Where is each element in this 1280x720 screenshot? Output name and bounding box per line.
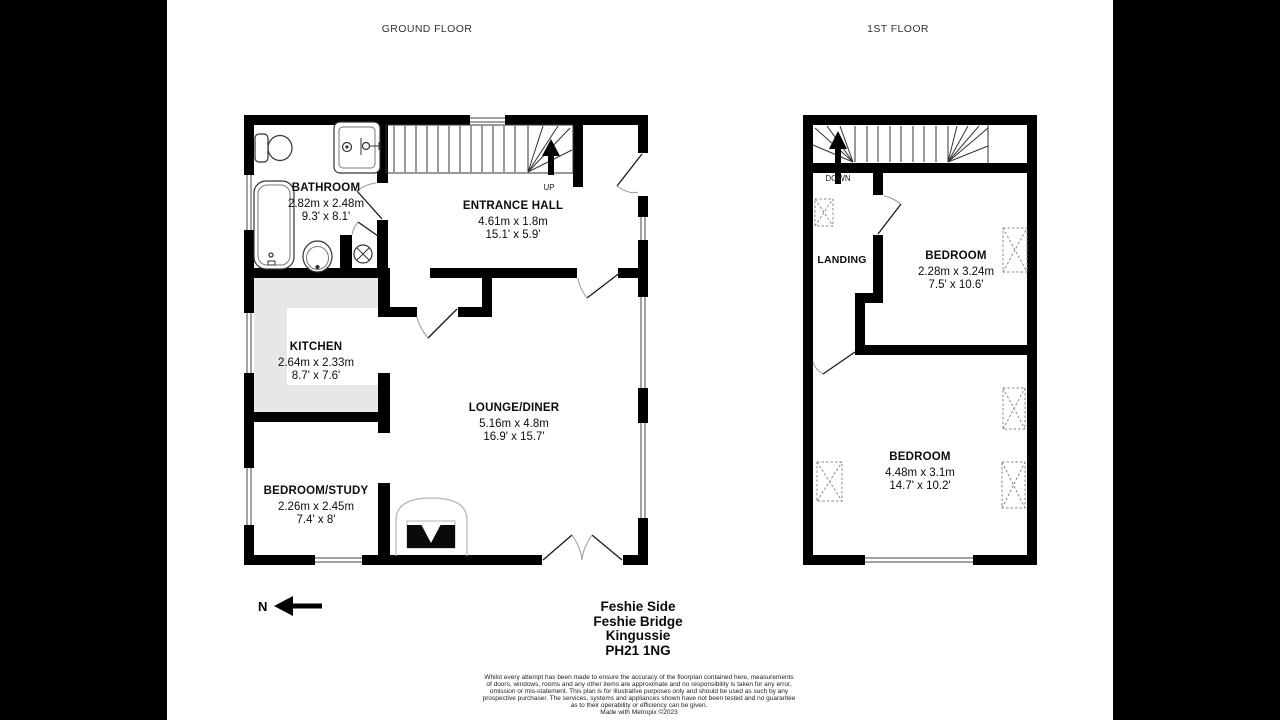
first-windows (865, 555, 973, 565)
ground-staircase (386, 125, 573, 173)
fireplace-icon (396, 498, 467, 556)
ground-floor-title: GROUND FLOOR (382, 23, 473, 35)
address-line: PH21 1NG (593, 644, 682, 659)
room-label-bedroom-1: BEDROOM 2.28m x 3.24m 7.5' x 10.6' (918, 249, 994, 291)
stairs-down-label: DOWN (825, 174, 850, 183)
room-label-bathroom: BATHROOM 2.82m x 2.48m 9.3' x 8.1' (288, 181, 364, 223)
disclaimer-line: as to their operability or efficiency ca… (483, 702, 796, 709)
room-label-bedroom-2: BEDROOM 4.48m x 3.1m 14.7' x 10.2' (885, 450, 955, 492)
first-floor-title: 1ST FLOOR (867, 23, 929, 35)
north-label: N (258, 599, 267, 614)
disclaimer-text: Whilst every attempt has been made to en… (483, 674, 796, 716)
room-label-entrance-hall: ENTRANCE HALL 4.61m x 1.8m 15.1' x 5.9' (463, 199, 563, 241)
disclaimer-line: prospective purchaser. The services, sys… (483, 695, 796, 702)
stairs-up-label: UP (543, 183, 554, 192)
disclaimer-line: Whilst every attempt has been made to en… (483, 674, 796, 681)
north-arrow-icon (274, 596, 322, 616)
disclaimer-line: Made with Metropix ©2023 (483, 709, 796, 716)
property-address: Feshie Side Feshie Bridge Kingussie PH21… (593, 600, 682, 658)
room-label-lounge-diner: LOUNGE/DINER 5.16m x 4.8m 16.9' x 15.7' (469, 401, 560, 443)
room-label-bedroom-study: BEDROOM/STUDY 2.26m x 2.45m 7.4' x 8' (264, 484, 369, 526)
room-label-landing: LANDING (817, 253, 866, 270)
disclaimer-line: omission or mis-statement. This plan is … (483, 688, 796, 695)
address-line: Feshie Bridge (593, 615, 682, 630)
address-line: Kingussie (593, 629, 682, 644)
address-line: Feshie Side (593, 600, 682, 615)
toilet-icon (255, 134, 268, 162)
room-label-kitchen: KITCHEN 2.64m x 2.33m 8.7' x 7.6' (278, 340, 354, 382)
disclaimer-line: of doors, windows, rooms and any other i… (483, 681, 796, 688)
